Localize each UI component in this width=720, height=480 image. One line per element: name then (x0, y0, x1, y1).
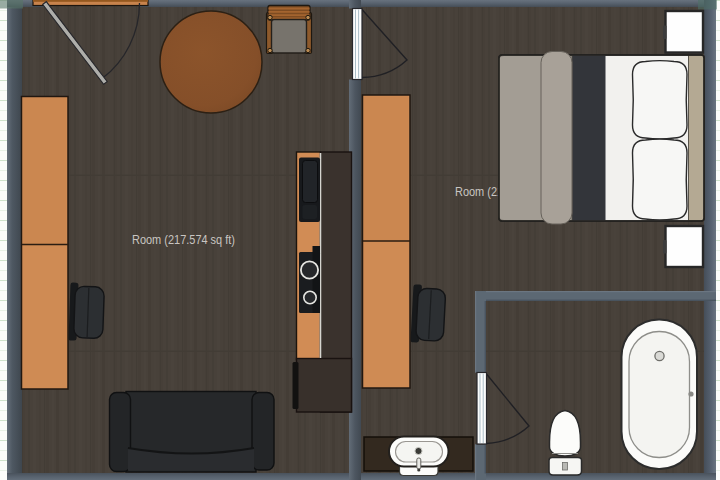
svg-text:Room (217.574 sq ft): Room (217.574 sq ft) (132, 232, 235, 247)
